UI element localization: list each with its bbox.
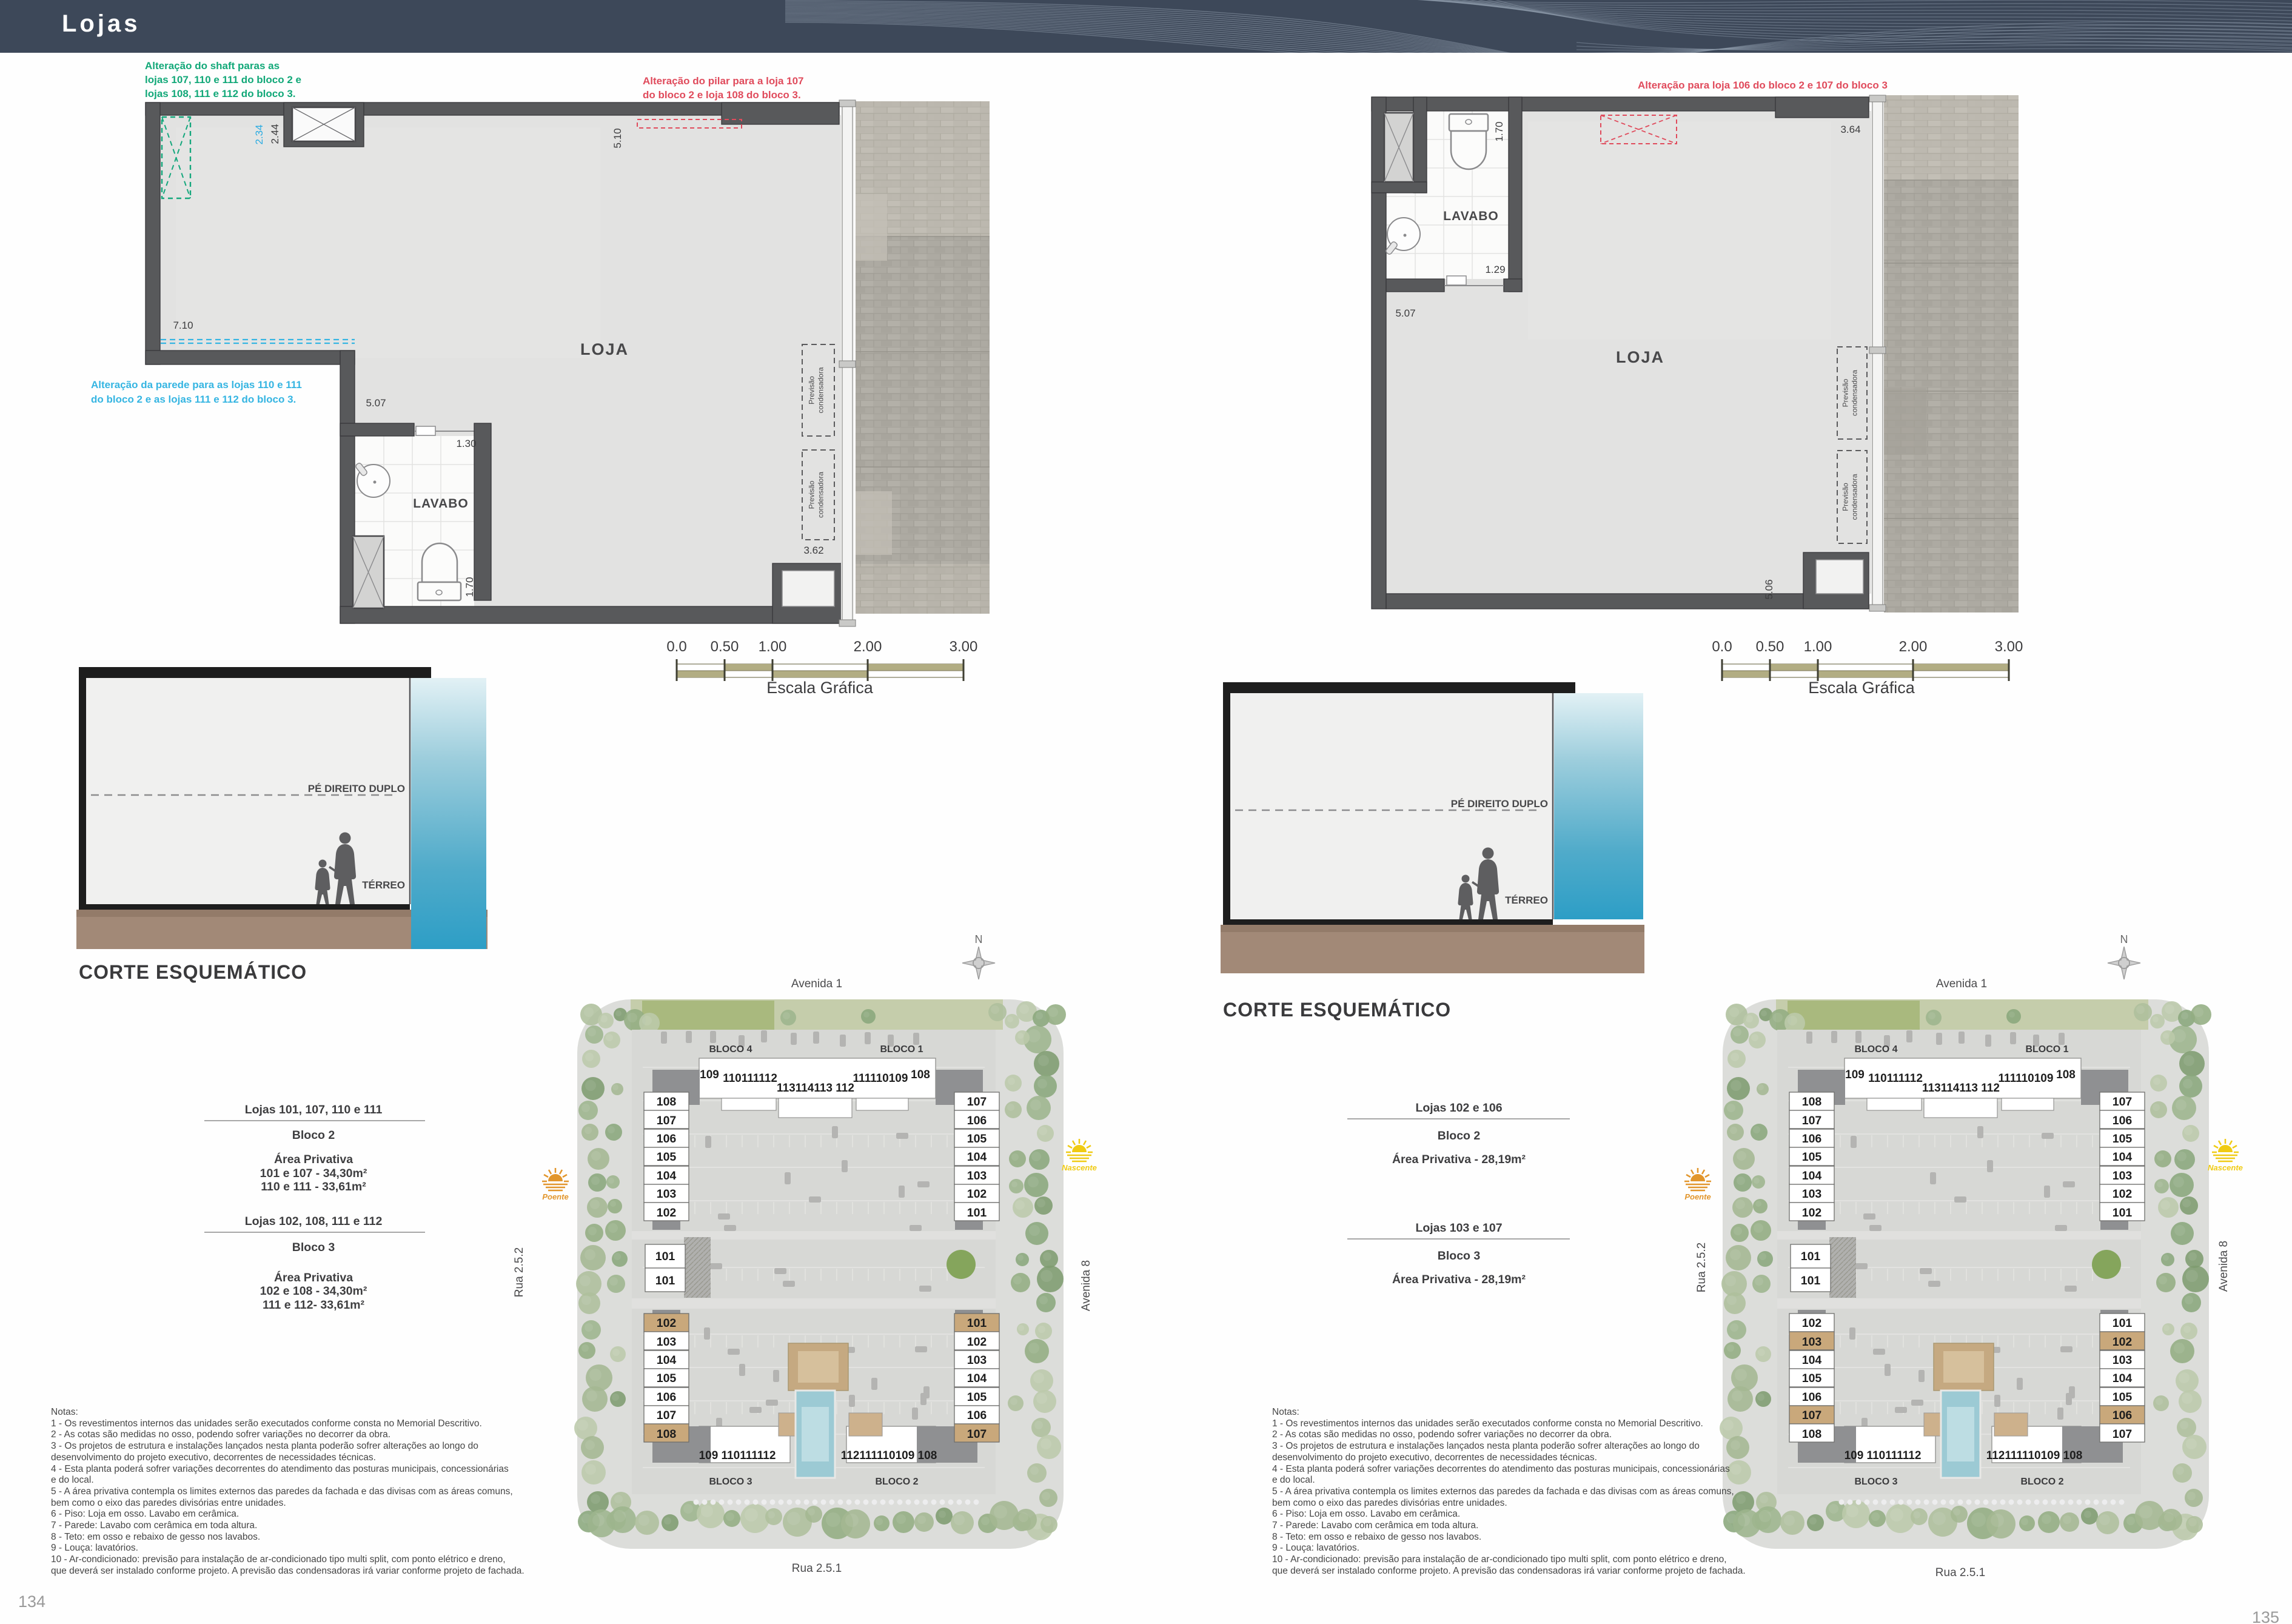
svg-text:105: 105 xyxy=(967,1132,987,1146)
svg-text:102: 102 xyxy=(2113,1187,2133,1201)
svg-text:104: 104 xyxy=(657,1354,677,1367)
svg-text:104: 104 xyxy=(1802,1354,1822,1367)
svg-text:condensadora: condensadora xyxy=(1851,474,1859,520)
svg-text:102: 102 xyxy=(657,1206,677,1220)
svg-text:101: 101 xyxy=(967,1317,987,1330)
svg-text:do bloco 2 e loja 108 do bloco: do bloco 2 e loja 108 do bloco 3. xyxy=(643,89,801,101)
svg-text:112111110109 108: 112111110109 108 xyxy=(841,1449,937,1462)
svg-text:103: 103 xyxy=(967,1354,987,1367)
svg-text:107: 107 xyxy=(657,1409,677,1422)
svg-text:110 e 111 - 33,61m²: 110 e 111 - 33,61m² xyxy=(261,1180,366,1193)
svg-text:106: 106 xyxy=(2113,1114,2133,1127)
svg-text:103: 103 xyxy=(657,1187,677,1201)
svg-text:102: 102 xyxy=(967,1335,987,1349)
svg-text:BLOCO 1: BLOCO 1 xyxy=(2025,1044,2068,1055)
svg-text:Bloco 3: Bloco 3 xyxy=(292,1241,335,1254)
svg-text:Área Privativa: Área Privativa xyxy=(274,1270,353,1284)
svg-text:condensadora: condensadora xyxy=(817,367,825,413)
svg-text:101: 101 xyxy=(655,1250,675,1263)
svg-text:106: 106 xyxy=(1802,1391,1822,1404)
svg-text:Bloco 2: Bloco 2 xyxy=(292,1129,335,1142)
svg-text:BLOCO 2: BLOCO 2 xyxy=(2020,1477,2063,1487)
svg-text:BLOCO 4: BLOCO 4 xyxy=(1854,1044,1897,1055)
svg-text:condensadora: condensadora xyxy=(1851,370,1859,416)
svg-text:102: 102 xyxy=(2113,1335,2133,1349)
svg-text:1.70: 1.70 xyxy=(464,577,475,597)
svg-text:109 110111112: 109 110111112 xyxy=(1845,1449,1922,1462)
svg-text:Nascente: Nascente xyxy=(1062,1163,1097,1172)
svg-text:101: 101 xyxy=(2113,1317,2133,1330)
svg-text:104: 104 xyxy=(967,1150,987,1164)
svg-text:108: 108 xyxy=(657,1428,677,1441)
svg-text:Avenida 1: Avenida 1 xyxy=(1936,978,1987,990)
svg-text:3.62: 3.62 xyxy=(803,545,823,556)
svg-text:2.44: 2.44 xyxy=(269,124,281,144)
svg-text:Previsão: Previsão xyxy=(1841,483,1850,511)
svg-text:110111112: 110111112 xyxy=(1868,1072,1923,1085)
svg-text:Previsão: Previsão xyxy=(1841,378,1850,407)
svg-text:3.00: 3.00 xyxy=(950,639,978,655)
svg-text:BLOCO 4: BLOCO 4 xyxy=(709,1044,752,1055)
svg-text:107: 107 xyxy=(657,1114,677,1127)
svg-text:N: N xyxy=(2120,933,2128,945)
svg-text:107: 107 xyxy=(967,1095,987,1109)
svg-text:101: 101 xyxy=(967,1206,987,1220)
svg-text:CORTE ESQUEMÁTICO: CORTE ESQUEMÁTICO xyxy=(79,961,307,983)
svg-text:TÉRREO: TÉRREO xyxy=(362,879,405,891)
svg-text:104: 104 xyxy=(1802,1169,1822,1183)
svg-text:105: 105 xyxy=(967,1391,987,1404)
svg-text:101: 101 xyxy=(1801,1250,1821,1263)
svg-text:Escala Gráfica: Escala Gráfica xyxy=(1808,679,1915,697)
svg-text:103: 103 xyxy=(657,1335,677,1349)
svg-text:Alteração do pilar para a loja: Alteração do pilar para a loja 107 xyxy=(643,75,804,87)
svg-text:Lojas 103 e 107: Lojas 103 e 107 xyxy=(1415,1221,1502,1235)
svg-text:1.70: 1.70 xyxy=(1493,121,1505,141)
svg-text:5.10: 5.10 xyxy=(612,128,623,148)
svg-text:Previsão: Previsão xyxy=(808,376,816,404)
svg-text:5.07: 5.07 xyxy=(1395,307,1415,319)
svg-text:104: 104 xyxy=(967,1372,987,1385)
svg-text:LOJA: LOJA xyxy=(580,340,629,358)
svg-text:Lojas 102 e 106: Lojas 102 e 106 xyxy=(1415,1101,1502,1115)
svg-text:CORTE ESQUEMÁTICO: CORTE ESQUEMÁTICO xyxy=(1223,999,1451,1021)
svg-text:106: 106 xyxy=(2113,1409,2133,1422)
svg-text:do bloco 2 e as lojas 111 e 11: do bloco 2 e as lojas 111 e 112 do bloco… xyxy=(91,394,296,405)
svg-text:113114113 112: 113114113 112 xyxy=(1922,1082,2000,1095)
svg-text:condensadora: condensadora xyxy=(817,472,825,518)
svg-text:2.00: 2.00 xyxy=(1899,639,1928,655)
svg-text:108: 108 xyxy=(911,1069,930,1081)
svg-text:104: 104 xyxy=(2113,1372,2133,1385)
svg-text:Poente: Poente xyxy=(1684,1192,1711,1201)
svg-text:101: 101 xyxy=(1801,1274,1821,1287)
svg-text:BLOCO 1: BLOCO 1 xyxy=(880,1044,923,1055)
svg-text:Bloco 2: Bloco 2 xyxy=(1438,1129,1481,1143)
svg-text:103: 103 xyxy=(1802,1187,1822,1201)
svg-text:0.0: 0.0 xyxy=(666,639,686,655)
svg-text:107: 107 xyxy=(2113,1095,2133,1109)
svg-text:Lojas 101, 107, 110 e 111: Lojas 101, 107, 110 e 111 xyxy=(245,1103,383,1116)
svg-text:107: 107 xyxy=(967,1428,987,1441)
svg-text:101: 101 xyxy=(655,1274,675,1287)
svg-text:Bloco 3: Bloco 3 xyxy=(1438,1249,1481,1263)
svg-text:105: 105 xyxy=(2113,1132,2133,1146)
svg-text:108: 108 xyxy=(2056,1069,2076,1081)
svg-text:103: 103 xyxy=(967,1169,987,1183)
svg-text:106: 106 xyxy=(967,1114,987,1127)
svg-text:3.00: 3.00 xyxy=(1995,639,2023,655)
svg-text:Poente: Poente xyxy=(542,1192,568,1201)
svg-text:105: 105 xyxy=(657,1372,677,1385)
svg-text:BLOCO 3: BLOCO 3 xyxy=(709,1477,752,1487)
svg-text:102 e 108 - 34,30m²: 102 e 108 - 34,30m² xyxy=(260,1284,367,1298)
svg-text:1.29: 1.29 xyxy=(1485,264,1505,275)
svg-text:106: 106 xyxy=(1802,1132,1822,1146)
svg-text:Área Privativa - 28,19m²: Área Privativa - 28,19m² xyxy=(1392,1152,1526,1166)
svg-text:103: 103 xyxy=(2113,1169,2133,1183)
svg-text:5.06: 5.06 xyxy=(1763,579,1775,599)
svg-text:Rua 2.5.1: Rua 2.5.1 xyxy=(1935,1566,1985,1579)
svg-text:Nascente: Nascente xyxy=(2208,1163,2243,1172)
svg-text:105: 105 xyxy=(2113,1391,2133,1404)
svg-text:106: 106 xyxy=(657,1391,677,1404)
svg-text:3.64: 3.64 xyxy=(1840,124,1860,135)
svg-text:101: 101 xyxy=(2113,1206,2133,1220)
svg-text:113114113 112: 113114113 112 xyxy=(777,1082,854,1095)
svg-text:111 e 112- 33,61m²: 111 e 112- 33,61m² xyxy=(263,1298,365,1312)
svg-text:Escala Gráfica: Escala Gráfica xyxy=(766,679,874,697)
svg-text:102: 102 xyxy=(967,1187,987,1201)
svg-text:7.10: 7.10 xyxy=(173,320,193,331)
svg-text:Avenida 1: Avenida 1 xyxy=(791,978,842,990)
svg-text:109: 109 xyxy=(1845,1069,1865,1081)
svg-text:Alteração do shaft paras as: Alteração do shaft paras as xyxy=(145,60,280,72)
svg-text:101 e 107 - 34,30m²: 101 e 107 - 34,30m² xyxy=(260,1167,367,1180)
svg-text:0.0: 0.0 xyxy=(1712,639,1732,655)
svg-text:102: 102 xyxy=(657,1317,677,1330)
svg-text:BLOCO 3: BLOCO 3 xyxy=(1854,1477,1897,1487)
svg-text:0.50: 0.50 xyxy=(711,639,739,655)
svg-text:Área Privativa - 28,19m²: Área Privativa - 28,19m² xyxy=(1392,1272,1526,1286)
svg-text:N: N xyxy=(975,933,983,945)
svg-text:111110109: 111110109 xyxy=(1999,1072,2054,1085)
svg-text:lojas 107, 110 e 111 do bloco: lojas 107, 110 e 111 do bloco 2 e xyxy=(145,74,301,86)
svg-text:Rua 2.5.1: Rua 2.5.1 xyxy=(792,1562,842,1575)
svg-text:0.50: 0.50 xyxy=(1756,639,1784,655)
svg-text:105: 105 xyxy=(1802,1150,1822,1164)
svg-text:108: 108 xyxy=(1802,1095,1822,1109)
svg-text:Rua 2.5.2: Rua 2.5.2 xyxy=(1695,1243,1708,1292)
svg-text:110111112: 110111112 xyxy=(723,1072,777,1085)
svg-text:103: 103 xyxy=(1802,1335,1822,1349)
svg-text:Avenida 8: Avenida 8 xyxy=(2217,1241,2230,1292)
svg-text:TÉRREO: TÉRREO xyxy=(1505,894,1548,906)
svg-text:PÉ DIREITO DUPLO: PÉ DIREITO DUPLO xyxy=(308,783,405,794)
svg-text:108: 108 xyxy=(657,1095,677,1109)
svg-text:104: 104 xyxy=(657,1169,677,1183)
svg-text:104: 104 xyxy=(2113,1150,2133,1164)
svg-text:lojas 108, 111 e 112 do bloco: lojas 108, 111 e 112 do bloco 3. xyxy=(145,88,296,99)
svg-text:BLOCO 2: BLOCO 2 xyxy=(875,1477,918,1487)
svg-text:111110109: 111110109 xyxy=(853,1072,908,1085)
svg-text:1.00: 1.00 xyxy=(759,639,787,655)
svg-text:102: 102 xyxy=(1802,1206,1822,1220)
svg-text:LOJA: LOJA xyxy=(1616,348,1664,366)
svg-text:Alteração da parede para as lo: Alteração da parede para as lojas 110 e … xyxy=(91,379,302,391)
svg-text:Rua 2.5.2: Rua 2.5.2 xyxy=(513,1247,526,1297)
svg-text:112111110109 108: 112111110109 108 xyxy=(1986,1449,2083,1462)
svg-text:107: 107 xyxy=(1802,1114,1822,1127)
svg-text:LAVABO: LAVABO xyxy=(413,497,469,511)
svg-text:Área Privativa: Área Privativa xyxy=(274,1152,353,1166)
svg-text:Previsão: Previsão xyxy=(808,480,816,509)
svg-text:PÉ DIREITO DUPLO: PÉ DIREITO DUPLO xyxy=(1451,798,1548,810)
svg-text:109: 109 xyxy=(700,1069,719,1081)
svg-text:1.00: 1.00 xyxy=(1804,639,1832,655)
svg-text:105: 105 xyxy=(657,1150,677,1164)
svg-text:Avenida 8: Avenida 8 xyxy=(1080,1260,1093,1311)
svg-text:103: 103 xyxy=(2113,1354,2133,1367)
svg-text:2.34: 2.34 xyxy=(253,124,265,144)
svg-text:Lojas 102, 108, 111 e 112: Lojas 102, 108, 111 e 112 xyxy=(245,1215,383,1228)
svg-text:109 110111112: 109 110111112 xyxy=(699,1449,776,1462)
svg-text:2.00: 2.00 xyxy=(854,639,882,655)
svg-text:5.07: 5.07 xyxy=(366,397,386,409)
svg-text:1.30: 1.30 xyxy=(456,438,476,449)
svg-text:102: 102 xyxy=(1802,1317,1822,1330)
svg-text:107: 107 xyxy=(2113,1428,2133,1441)
svg-text:106: 106 xyxy=(967,1409,987,1422)
svg-text:106: 106 xyxy=(657,1132,677,1146)
svg-text:Alteração para loja 106 do blo: Alteração para loja 106 do bloco 2 e 107… xyxy=(1638,79,1888,91)
svg-text:105: 105 xyxy=(1802,1372,1822,1385)
svg-text:LAVABO: LAVABO xyxy=(1443,209,1499,223)
